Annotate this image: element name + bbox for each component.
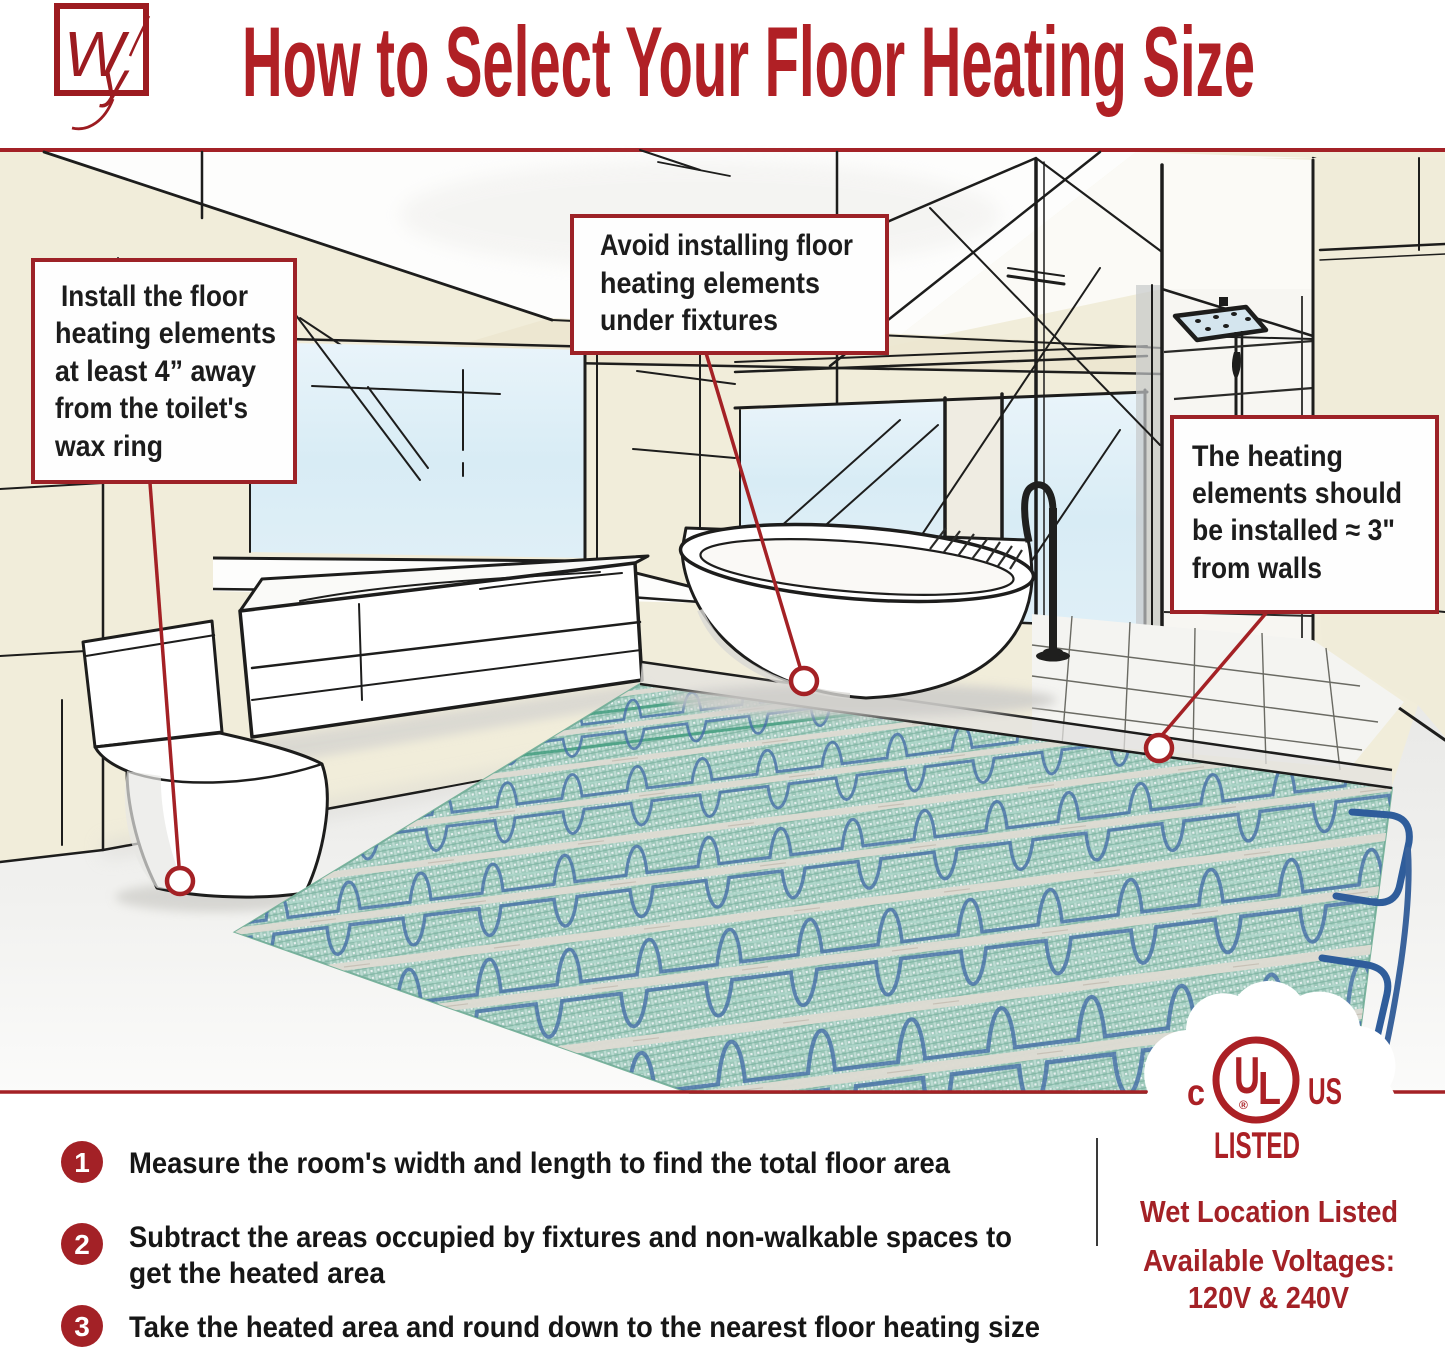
svg-text:elements should: elements should (1192, 477, 1402, 510)
svg-text:be installed ≈ 3": be installed ≈ 3" (1192, 514, 1395, 547)
svg-text:U: U (1234, 1047, 1260, 1105)
svg-text:2: 2 (74, 1229, 90, 1260)
svg-text:3: 3 (74, 1311, 90, 1342)
svg-text:1: 1 (74, 1147, 90, 1178)
svg-text:Avoid installing floor: Avoid installing floor (600, 229, 853, 262)
svg-text:from walls: from walls (1192, 552, 1322, 585)
svg-text:120V & 240V: 120V & 240V (1188, 1280, 1349, 1315)
svg-text:y: y (99, 52, 130, 108)
svg-text:How to Select Your Floor Heati: How to Select Your Floor Heating Size (242, 6, 1255, 117)
svg-text:heating elements: heating elements (55, 317, 276, 350)
svg-text:®: ® (1239, 1098, 1248, 1112)
svg-text:Subtract the areas occupied by: Subtract the areas occupied by fixtures … (129, 1221, 1012, 1254)
svg-text:at least 4” away: at least 4” away (55, 355, 256, 388)
svg-text:Wet Location Listed: Wet Location Listed (1140, 1194, 1398, 1229)
svg-text:The heating: The heating (1192, 440, 1343, 473)
svg-text:L: L (1258, 1062, 1281, 1114)
svg-text:US: US (1308, 1071, 1342, 1112)
svg-text:Measure the room's width and l: Measure the room's width and length to f… (129, 1147, 950, 1180)
svg-text:under fixtures: under fixtures (600, 304, 778, 337)
svg-text:Available Voltages:: Available Voltages: (1143, 1243, 1395, 1278)
svg-text:heating elements: heating elements (600, 267, 820, 300)
svg-text:from the toilet's: from the toilet's (55, 392, 248, 425)
svg-text:Install the floor: Install the floor (61, 280, 248, 313)
svg-text:wax ring: wax ring (54, 430, 163, 463)
svg-text:c: c (1187, 1072, 1205, 1113)
svg-text:get the heated area: get the heated area (129, 1257, 385, 1290)
svg-text:Take the heated area and round: Take the heated area and round down to t… (129, 1311, 1040, 1344)
svg-text:LISTED: LISTED (1214, 1125, 1300, 1166)
